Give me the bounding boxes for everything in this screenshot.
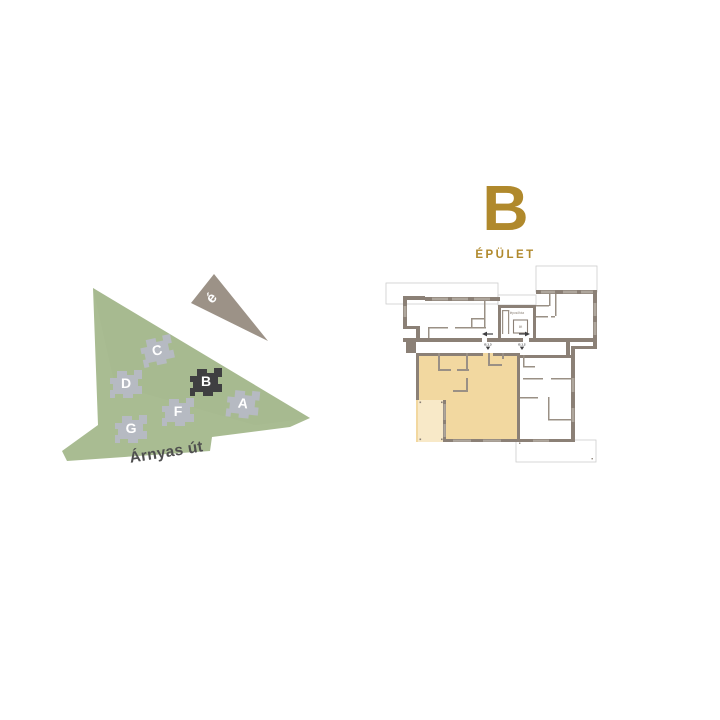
building-letter: B: [383, 176, 628, 240]
stair-core-label: lépcsőház: [510, 311, 525, 315]
site-building-d-label: D: [121, 375, 131, 391]
unit-label-b13: B.1.3: [484, 342, 492, 346]
site-building-f-label: F: [174, 403, 183, 419]
site-plan-map: é C D B A F G Árnyas út: [55, 265, 325, 470]
unit-label-b12: B.1.2: [518, 342, 526, 346]
compass-north-arrow: é: [191, 274, 268, 341]
lift-label: lift: [519, 325, 522, 329]
stair-vestibule: [498, 295, 536, 305]
door-arrow-b13-icon: [486, 347, 490, 350]
site-building-a-label: A: [237, 395, 249, 412]
stair-core: lépcsőház lift: [502, 310, 528, 334]
building-header: B ÉPÜLET: [383, 176, 628, 261]
page: é C D B A F G Árnyas út: [0, 0, 720, 720]
entry-arrow-left-icon: [482, 332, 487, 337]
terrace-top-right: [536, 266, 597, 292]
door-arrow-b12-icon: [520, 347, 524, 350]
highlighted-unit-terrace: [418, 400, 446, 442]
terrace-bottom-right: [516, 440, 596, 462]
site-building-b-label: B: [201, 373, 211, 389]
site-building-g-label: G: [126, 420, 137, 436]
floor-plan: lépcsőház lift B.1.3 B.1.2: [383, 258, 628, 473]
